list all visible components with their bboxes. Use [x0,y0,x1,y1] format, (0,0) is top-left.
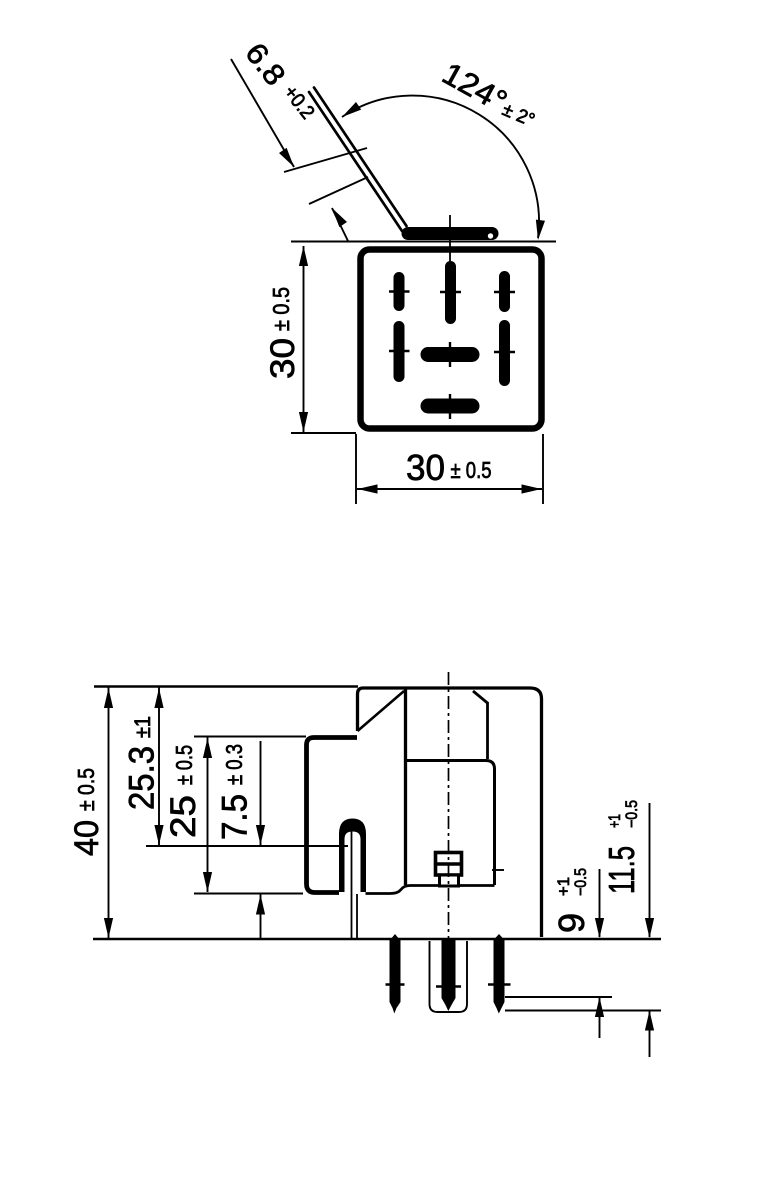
svg-text:30: 30 [264,338,302,379]
svg-text:11.5: 11.5 [601,846,642,894]
svg-text:+1: +1 [555,877,573,896]
svg-text:± 0.5: ± 0.5 [451,457,492,483]
svg-text:± 0.5: ± 0.5 [73,768,99,811]
svg-text:30: 30 [406,447,445,488]
svg-text:9: 9 [551,913,592,933]
svg-text:−0.5: −0.5 [623,800,641,828]
svg-text:± 0.5: ± 0.5 [171,745,197,785]
svg-text:7.5: 7.5 [216,794,255,840]
svg-text:± 0.3: ± 0.3 [221,744,247,785]
svg-text:±1: ±1 [130,716,155,738]
svg-text:−0.5: −0.5 [572,868,590,896]
svg-text:± 0.5: ± 0.5 [268,287,294,331]
svg-text:25.3: 25.3 [123,746,162,810]
svg-text:+1: +1 [606,814,624,828]
svg-text:25: 25 [164,795,203,838]
svg-text:40: 40 [68,820,106,856]
